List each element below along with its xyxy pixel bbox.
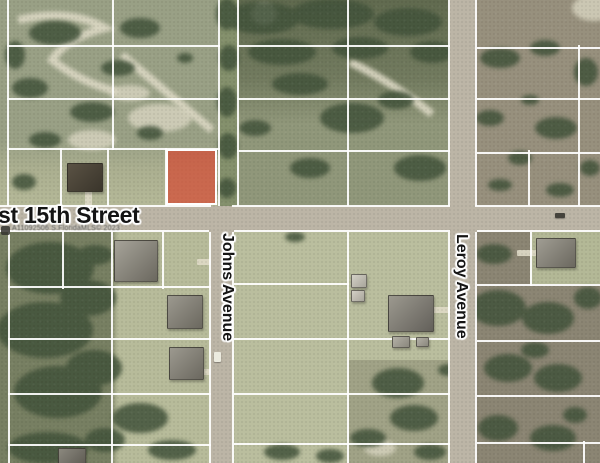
parcel-line (448, 0, 450, 206)
parcel-line (237, 0, 239, 206)
house-roof (58, 448, 86, 463)
driveway (517, 250, 538, 256)
parcel-line (237, 98, 450, 100)
parcel-line (234, 393, 450, 395)
parcel-line (111, 232, 113, 463)
parcel-line (477, 395, 600, 397)
house-roof (536, 238, 576, 268)
parcel-line (62, 232, 64, 289)
parcel-line (477, 152, 600, 154)
parcel-line (583, 441, 585, 463)
parcel-line (234, 443, 450, 445)
house-roof (167, 295, 203, 329)
parcel-line (8, 286, 211, 288)
parcel-line (477, 442, 600, 444)
vehicle (555, 213, 565, 218)
house-roof (114, 240, 158, 282)
street-label-leroy-avenue: Leroy Avenue (452, 234, 470, 339)
parcel-line (7, 0, 9, 206)
parcel-line (8, 393, 211, 395)
parcel-line (477, 98, 600, 100)
leroy-avenue (450, 0, 475, 463)
parcel-line (7, 98, 220, 100)
parcel-line (477, 230, 600, 232)
parcel-line (477, 340, 600, 342)
listing-map-screenshot: st 15th Street Johns Avenue Leroy Avenue… (0, 0, 600, 463)
terrain-south-middle-scrub (349, 360, 450, 463)
parcel-line (8, 232, 10, 463)
parcel-line (60, 148, 62, 206)
watermark-logo-icon (1, 226, 10, 235)
shed (351, 290, 365, 302)
parcel-line (475, 205, 600, 207)
shed (392, 336, 410, 348)
highlighted-parcel[interactable] (166, 149, 217, 205)
parcel-line (347, 232, 349, 463)
parcel-line (232, 205, 450, 207)
parcel-line (578, 45, 580, 206)
parcel-line (475, 232, 477, 463)
parcel-line (530, 232, 532, 286)
parcel-line (477, 47, 600, 49)
shed (351, 274, 367, 288)
parcel-line (448, 232, 450, 463)
parcel-line (162, 232, 164, 289)
parcel-line (112, 0, 114, 150)
house-roof (169, 347, 204, 380)
shed (416, 337, 429, 347)
parcel-line (237, 150, 450, 152)
street-label-johns-avenue: Johns Avenue (218, 233, 236, 341)
parcel-line (218, 0, 220, 206)
house-roof (388, 295, 434, 332)
parcel-line (347, 0, 349, 206)
parcel-line (528, 150, 530, 206)
parcel-line (237, 45, 450, 47)
aerial-parcel-map[interactable]: st 15th Street Johns Avenue Leroy Avenue… (0, 0, 600, 463)
parcel-line (234, 283, 349, 285)
parcel-line (8, 444, 211, 446)
parcel-line (234, 230, 450, 232)
parcel-line (477, 284, 600, 286)
parcel-line (209, 232, 211, 463)
terrain-north-right (475, 0, 600, 206)
terrain-johns-corridor (218, 0, 239, 206)
parcel-line (107, 148, 109, 206)
terrain-north-middle (239, 0, 450, 206)
vehicle (214, 352, 221, 362)
parcel-line (8, 338, 211, 340)
parcel-line (7, 45, 220, 47)
parcel-line (475, 0, 477, 206)
house-roof (67, 163, 103, 192)
mls-watermark: A11092506 S.FloridaMLS© 2023 (12, 225, 120, 232)
